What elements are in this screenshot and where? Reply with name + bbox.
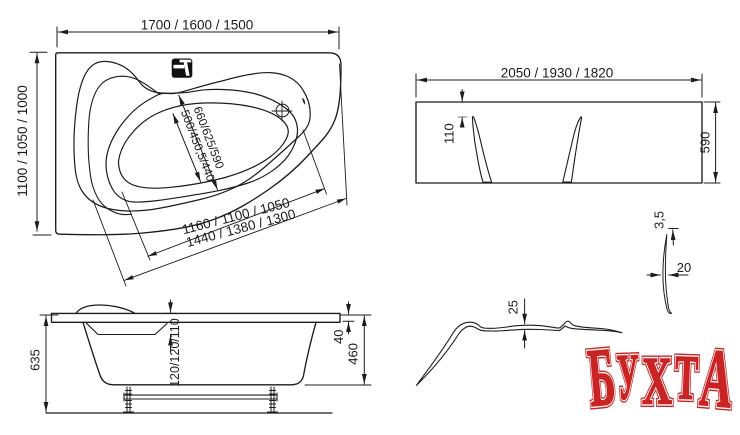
svg-text:635: 635 [28,349,43,371]
svg-text:А: А [697,331,737,425]
svg-text:25: 25 [506,300,521,314]
svg-text:590: 590 [698,132,713,154]
svg-text:3,5: 3,5 [652,211,667,229]
svg-text:2050 / 1930 / 1820: 2050 / 1930 / 1820 [501,66,614,81]
svg-text:120/120/110: 120/120/110 [168,318,182,387]
svg-text:1100 / 1050 / 1000: 1100 / 1050 / 1000 [15,85,30,197]
svg-text:1700 / 1600 / 1500: 1700 / 1600 / 1500 [141,18,254,33]
svg-text:У: У [616,341,640,414]
svg-text:Х: Х [642,343,672,419]
svg-text:110: 110 [442,123,457,144]
svg-text:20: 20 [677,260,691,275]
svg-text:40: 40 [331,330,346,344]
svg-text:Т: Т [674,342,699,413]
svg-text:460: 460 [345,343,360,365]
svg-text:Б: Б [585,330,619,424]
